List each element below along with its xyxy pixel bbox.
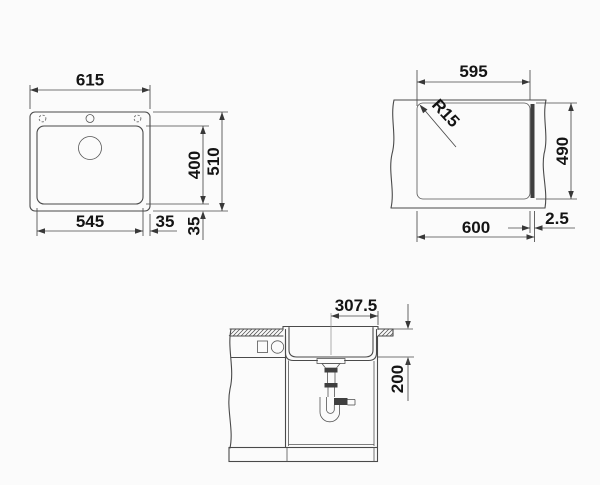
- dim-edge-reveal: 2.5: [508, 209, 575, 233]
- section-bowl-depth-label: 200: [388, 365, 407, 393]
- dim-right-margin: 35: [150, 212, 177, 236]
- bowl-width-label: 545: [76, 212, 104, 231]
- top-view: 615 510 400 545: [30, 71, 228, 241]
- cabinet-break-left: [229, 329, 232, 448]
- drain-strainer: [317, 359, 345, 364]
- sink-drawing-svg: 615 510 400 545: [0, 0, 600, 485]
- counter-left: [229, 329, 283, 336]
- drain-circle: [79, 137, 102, 160]
- coupling-nut-top: [325, 368, 338, 373]
- technical-drawing-page: 615 510 400 545: [0, 0, 600, 485]
- right-margin-label: 35: [156, 212, 175, 231]
- cutout-opening: [417, 103, 530, 199]
- tap-hole-center: [86, 115, 94, 123]
- bowl-depth-label: 400: [185, 151, 204, 179]
- cutout-view: 595 R15 490 600: [391, 62, 577, 242]
- worktop-break-left: [391, 100, 394, 208]
- outer-width-label: 600: [462, 218, 490, 237]
- section-view: 307.5 200: [229, 296, 414, 462]
- tap-hole-left: [39, 115, 46, 122]
- front-rail-knob: [271, 341, 283, 353]
- cabinet: [229, 329, 378, 462]
- counter-right: [378, 329, 393, 336]
- drain-assembly: [317, 359, 355, 422]
- overall-depth-label: 510: [204, 147, 223, 175]
- dim-outer-width: 600: [417, 211, 535, 242]
- dim-overall-width: 615: [30, 71, 150, 110]
- hatch-right: [378, 329, 393, 336]
- drain-offset-label: 307.5: [335, 296, 378, 315]
- front-rail-switch: [258, 341, 268, 353]
- dim-bottom-margin: 35: [185, 211, 206, 240]
- cutout-depth-label: 490: [553, 137, 572, 165]
- edge-reveal-label: 2.5: [545, 209, 569, 228]
- hatch-left: [229, 329, 283, 336]
- siphon-trap-inner: [326, 397, 334, 413]
- cutout-edge-strip: [531, 104, 535, 198]
- overall-width-label: 615: [76, 71, 104, 90]
- worktop-break-right: [543, 100, 546, 208]
- bowl-outline: [37, 126, 143, 204]
- tap-hole-right: [134, 115, 141, 122]
- sink-section: [283, 313, 378, 361]
- dim-cutout-depth: 490: [536, 103, 577, 199]
- coupling-nut-mid: [325, 383, 338, 388]
- bottom-margin-label: 35: [185, 217, 204, 236]
- dim-cutout-width: 595: [417, 62, 530, 106]
- dim-bowl-width: 545: [37, 208, 143, 236]
- cabinet-plinth: [229, 448, 378, 462]
- cutout-width-label: 595: [459, 62, 487, 81]
- corner-radius-label: R15: [428, 95, 463, 131]
- coupling-nut-outlet: [334, 398, 348, 405]
- dim-bowl-depth: 400: [146, 126, 209, 204]
- dim-section-bowl-depth: 200: [378, 304, 414, 401]
- dim-drain-offset: 307.5: [331, 296, 378, 325]
- drain-cone: [322, 364, 340, 369]
- sink-outline: [30, 112, 150, 211]
